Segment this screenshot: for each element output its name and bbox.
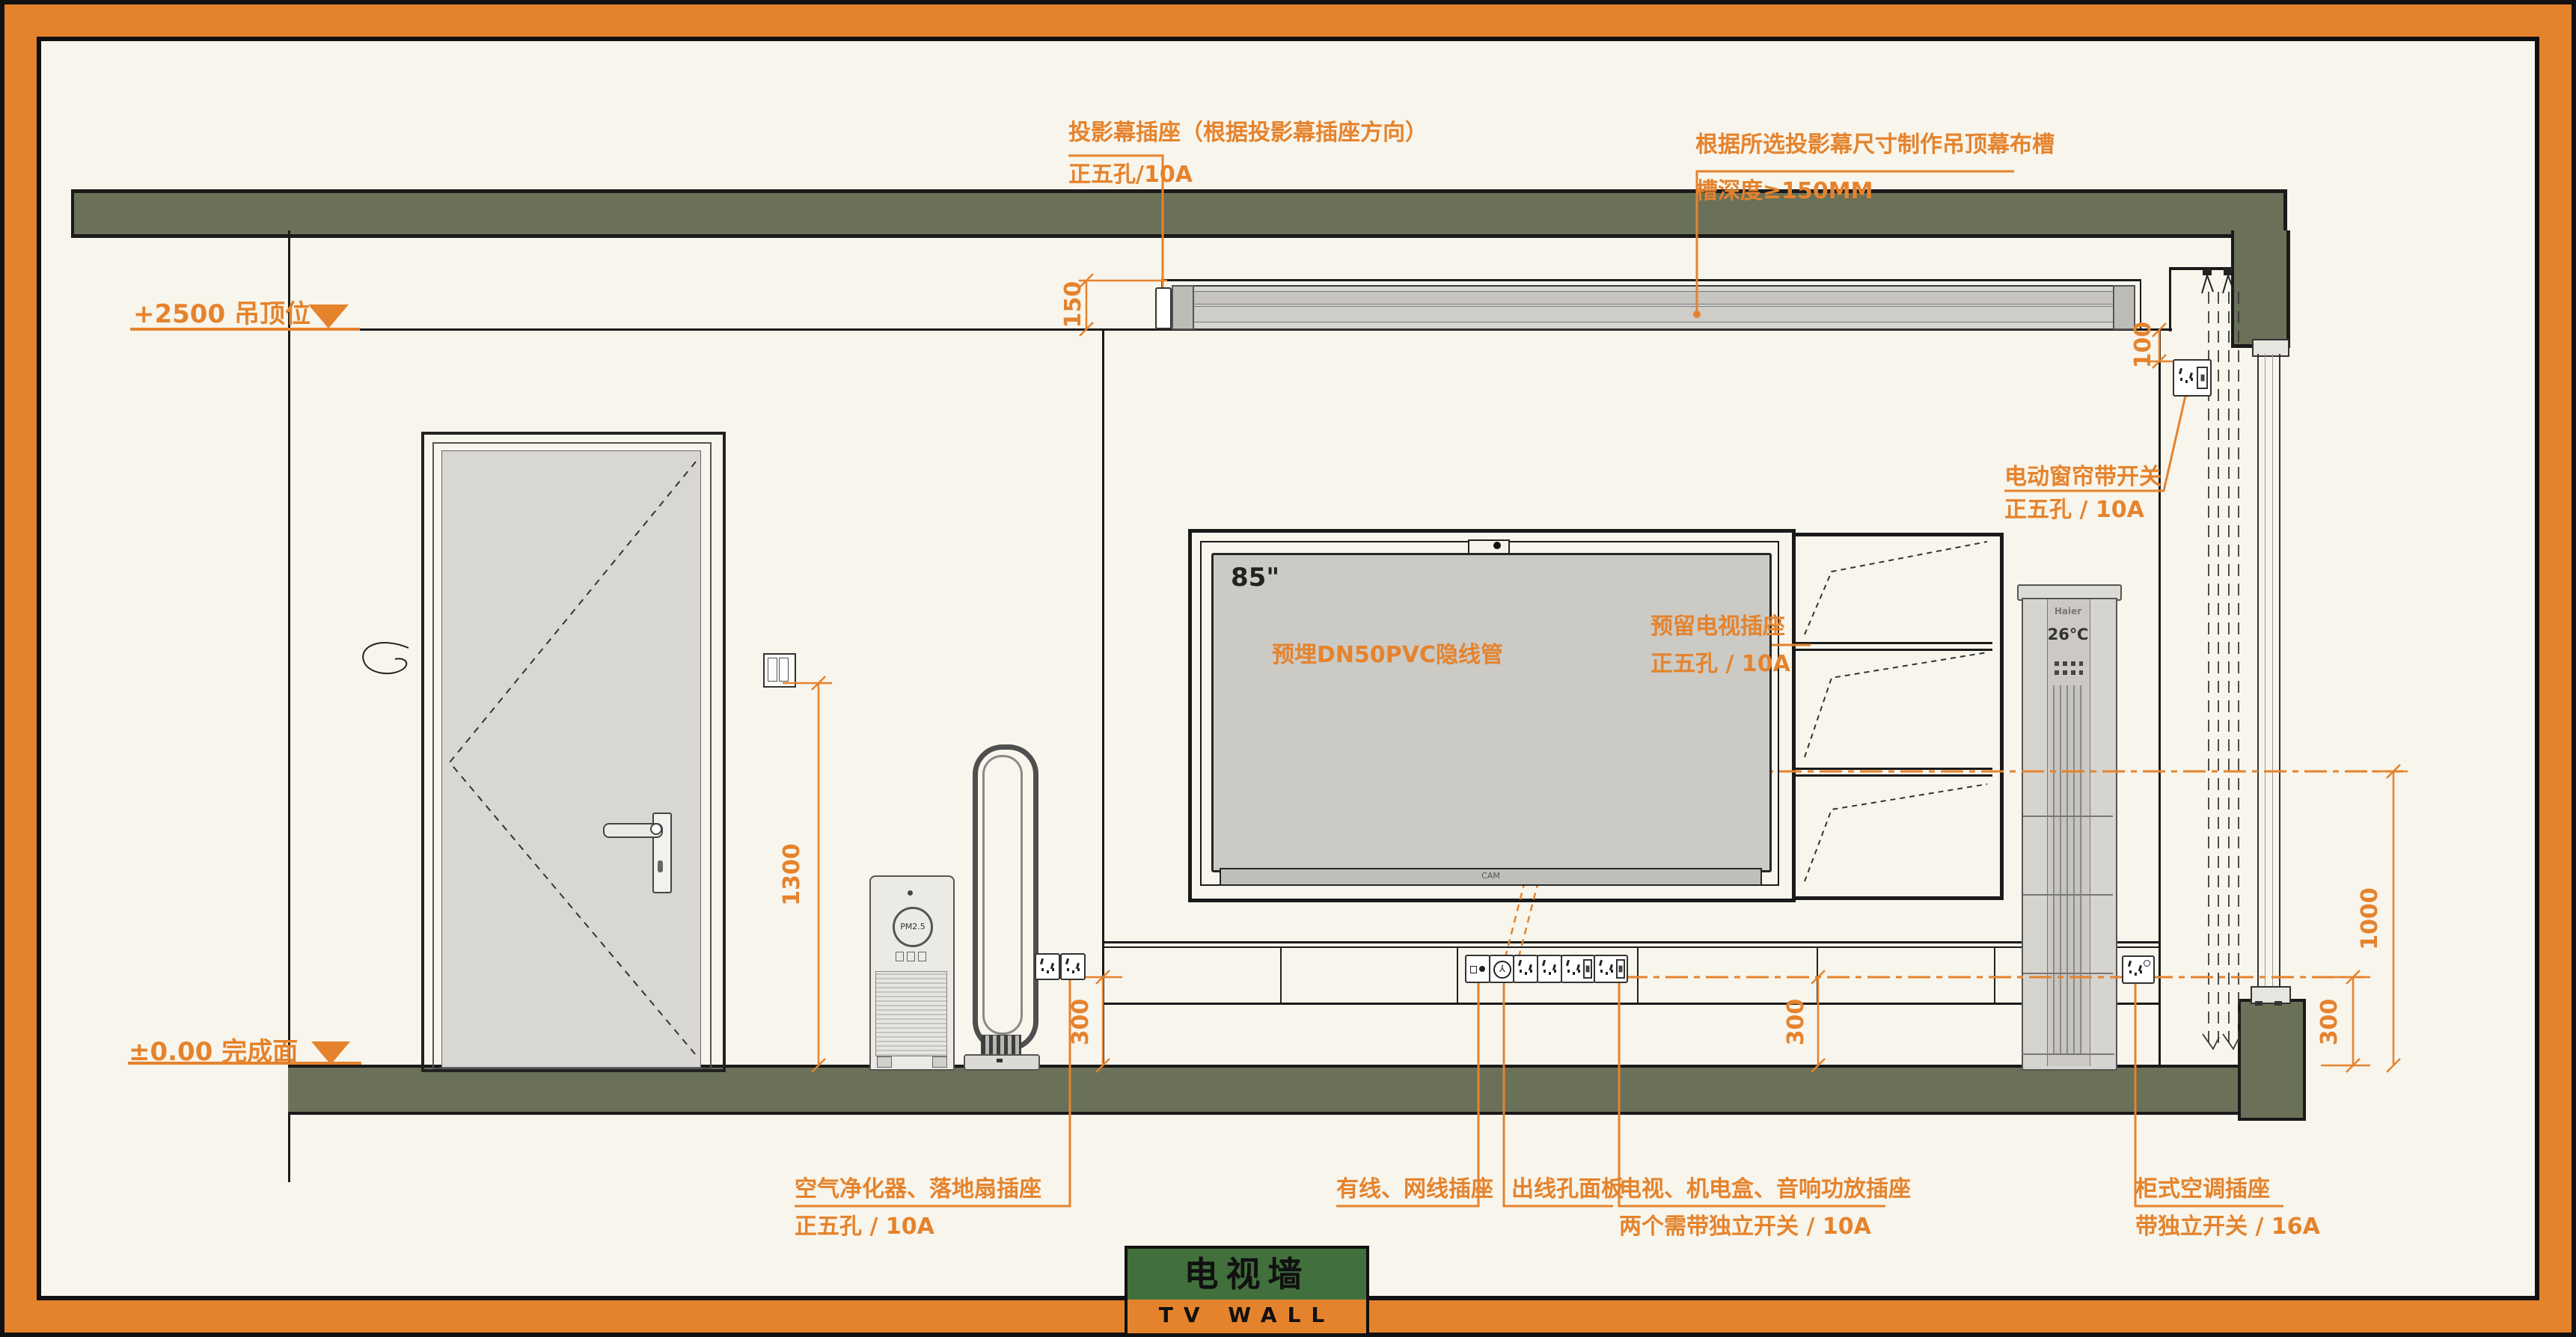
frame-inner-line xyxy=(37,37,2539,1300)
title-block-cn: 电视墙 xyxy=(1125,1246,1369,1306)
elevation-drawing: PM2.5 Haier 26℃ xyxy=(0,0,2576,1337)
title-block-en: TV WALL xyxy=(1125,1300,1369,1336)
